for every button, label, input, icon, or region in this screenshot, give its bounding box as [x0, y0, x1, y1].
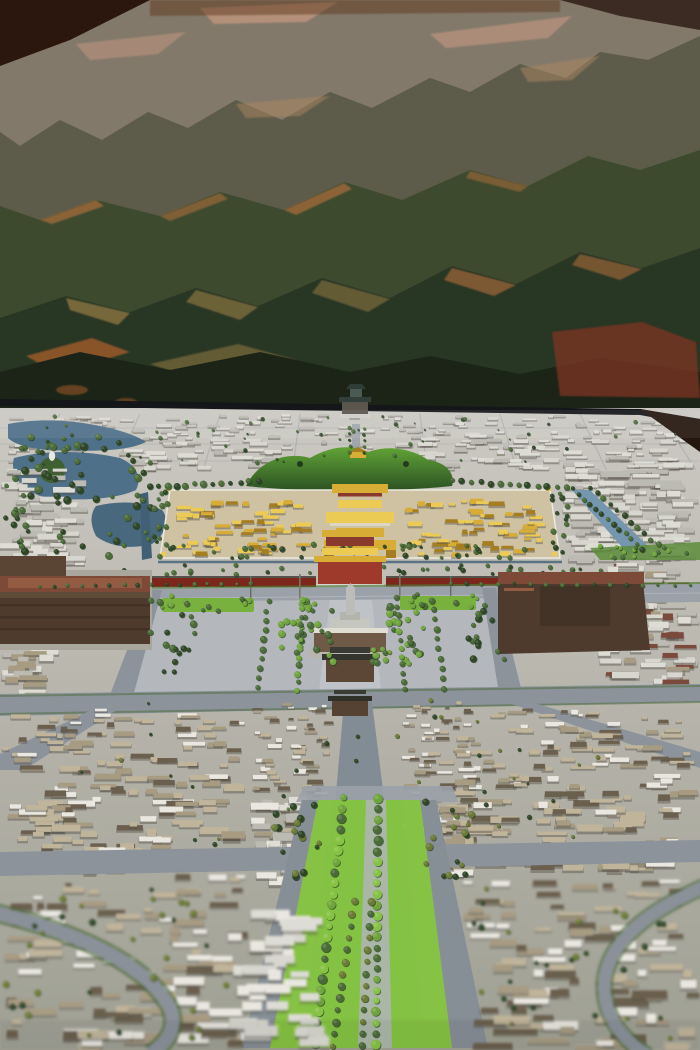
city-block	[683, 752, 690, 755]
tree-highlight	[339, 806, 343, 810]
tree-highlight	[656, 551, 658, 553]
tree-highlight	[460, 863, 462, 865]
tree-highlight	[416, 593, 418, 595]
tree-highlight	[387, 611, 390, 614]
city-block	[262, 759, 273, 762]
city-block	[620, 818, 646, 822]
tree-highlight	[423, 799, 426, 802]
tree-highlight	[374, 826, 378, 830]
tree-highlight	[139, 456, 140, 457]
city-block	[592, 440, 609, 443]
tree-highlight	[369, 899, 373, 903]
tree-highlight	[38, 585, 39, 586]
city-block	[600, 730, 622, 733]
tree-highlight	[364, 439, 365, 440]
tree-highlight	[417, 652, 420, 655]
city-block	[606, 452, 621, 454]
city-block	[588, 712, 599, 715]
tree-highlight	[424, 862, 426, 864]
city-block	[98, 760, 105, 765]
tree-highlight	[674, 584, 675, 585]
tree-highlight	[157, 525, 159, 527]
city-block	[571, 514, 591, 519]
tree-highlight	[299, 630, 301, 632]
city-block	[618, 506, 630, 511]
tree-highlight	[561, 583, 563, 585]
tree-highlight	[413, 649, 416, 652]
tree-highlight	[544, 484, 547, 487]
city-block	[175, 874, 190, 879]
city-block	[491, 546, 499, 551]
tree-highlight	[23, 523, 26, 526]
tree-highlight	[413, 595, 415, 597]
city-block	[37, 903, 44, 909]
city-block	[9, 666, 26, 671]
tree-highlight	[334, 847, 338, 851]
city-block	[183, 742, 205, 746]
tree-highlight	[450, 808, 452, 810]
city-block	[668, 459, 677, 461]
city-block	[419, 451, 438, 455]
tree-highlight	[469, 812, 472, 815]
tree-highlight	[374, 870, 378, 874]
city-block	[573, 884, 598, 889]
tree-highlight	[408, 640, 411, 643]
city-block	[455, 717, 461, 720]
tree-highlight	[189, 615, 191, 617]
city-block	[678, 617, 691, 624]
tree-highlight	[11, 522, 14, 525]
city-block	[497, 450, 504, 454]
tree-highlight	[160, 492, 162, 494]
city-block	[144, 908, 152, 912]
city-block	[177, 889, 200, 894]
tree-highlight	[497, 825, 499, 827]
tree-highlight	[213, 843, 215, 845]
tree-highlight	[375, 806, 379, 810]
city-block	[625, 500, 635, 504]
city-block	[215, 892, 225, 896]
city-block	[673, 502, 694, 507]
tree-highlight	[164, 525, 166, 527]
tree-highlight	[372, 1008, 376, 1012]
tree-highlight	[466, 823, 468, 825]
tree-highlight	[556, 485, 558, 487]
city-block	[405, 508, 412, 513]
tree-highlight	[81, 584, 83, 586]
tree-highlight	[373, 923, 377, 927]
city-block	[129, 789, 138, 795]
tree-highlight	[66, 584, 68, 586]
tree-highlight	[308, 571, 309, 572]
city-block	[624, 658, 635, 664]
tree-highlight	[339, 984, 342, 987]
tree-highlight	[165, 630, 168, 633]
city-block	[424, 760, 436, 763]
gate-base	[338, 493, 382, 497]
tree-highlight	[481, 609, 484, 612]
tree-highlight	[80, 544, 83, 547]
city-block	[175, 720, 181, 724]
city-block	[188, 442, 200, 444]
city-block	[457, 736, 469, 740]
tree-highlight	[141, 471, 144, 474]
tree-highlight	[108, 532, 110, 534]
city-block	[514, 513, 524, 517]
city-block	[473, 802, 491, 808]
city-block	[70, 722, 81, 724]
city-block	[654, 774, 680, 778]
tree-highlight	[522, 547, 524, 549]
tree-highlight	[279, 622, 282, 625]
city-block	[90, 843, 106, 847]
tree-highlight	[399, 646, 401, 648]
tree-highlight	[172, 670, 174, 672]
city-block	[211, 501, 223, 506]
tree-highlight	[551, 529, 554, 532]
city-block	[221, 831, 245, 838]
tree-highlight	[441, 676, 444, 679]
tree-highlight	[453, 874, 456, 877]
city-block	[173, 943, 198, 947]
city-block	[191, 508, 204, 512]
city-block	[471, 742, 480, 745]
tree-highlight	[326, 924, 329, 927]
city-block	[322, 440, 327, 444]
city-block	[679, 790, 698, 795]
city-block	[423, 707, 431, 709]
city-block	[102, 993, 119, 998]
city-block	[610, 757, 629, 761]
tree-highlight	[381, 647, 383, 649]
city-block	[548, 776, 559, 781]
tree-highlight	[352, 899, 355, 902]
tree-highlight	[509, 565, 511, 567]
tree-highlight	[224, 445, 225, 446]
tree-highlight	[593, 583, 595, 585]
shenwu-gate	[332, 484, 388, 493]
city-block	[112, 790, 126, 794]
tree-highlight	[5, 484, 7, 486]
tree-highlight	[364, 984, 367, 987]
city-block	[183, 534, 188, 537]
tree-highlight	[601, 496, 604, 499]
tree-highlight	[135, 493, 137, 495]
city-block	[187, 955, 212, 960]
tree-highlight	[571, 487, 573, 489]
city-block	[545, 443, 559, 445]
tree-highlight	[231, 557, 232, 558]
tree-highlight	[365, 959, 368, 962]
city-block	[663, 813, 678, 818]
tree-highlight	[322, 944, 326, 948]
tree-highlight	[536, 484, 538, 486]
city-block	[442, 719, 452, 722]
city-block	[141, 928, 162, 933]
tree-highlight	[202, 609, 204, 611]
city-block	[649, 622, 669, 628]
city-block	[642, 716, 647, 719]
city-block	[676, 720, 681, 722]
city-block	[226, 501, 238, 504]
tree-highlight	[323, 454, 324, 455]
flagpole	[299, 574, 301, 598]
tree-highlight	[393, 454, 395, 456]
tree-highlight	[435, 627, 438, 630]
tree-highlight	[599, 512, 601, 514]
tree-highlight	[22, 468, 26, 472]
tree-highlight	[273, 812, 276, 815]
tree-highlight	[221, 569, 222, 570]
tree-highlight	[299, 623, 301, 625]
tree-highlight	[465, 554, 467, 556]
tree-highlight	[56, 501, 58, 503]
city-block	[551, 905, 564, 909]
city-block	[255, 511, 268, 515]
tree-highlight	[565, 447, 566, 448]
tree-highlight	[354, 759, 356, 761]
tree-highlight	[165, 484, 168, 487]
tree-highlight	[297, 680, 299, 682]
tree-highlight	[296, 663, 299, 666]
tree-highlight	[129, 467, 132, 470]
city-block	[61, 727, 67, 731]
city-block	[413, 705, 420, 708]
city-block	[10, 804, 21, 808]
city-block	[667, 667, 689, 671]
city-block	[178, 762, 197, 766]
tree-highlight	[170, 646, 173, 649]
city-block	[305, 731, 317, 734]
tree-highlight	[264, 628, 267, 631]
city-block	[643, 745, 662, 750]
city-block	[534, 970, 543, 977]
city-block	[255, 732, 260, 734]
tree-highlight	[349, 924, 352, 927]
tree-highlight	[243, 546, 245, 548]
tree-highlight	[157, 484, 159, 486]
tree-highlight	[417, 780, 419, 782]
tree-highlight	[507, 568, 509, 570]
city-block	[663, 653, 678, 658]
city-block	[292, 755, 300, 758]
city-block	[638, 970, 646, 976]
tree-highlight	[439, 657, 442, 660]
city-block	[428, 752, 440, 756]
tree-highlight	[331, 880, 335, 884]
tree-highlight	[442, 874, 444, 876]
city-block	[489, 522, 503, 525]
tree-highlight	[552, 799, 554, 801]
tree-highlight	[372, 648, 374, 650]
tree-highlight	[149, 733, 150, 734]
city-block	[291, 745, 301, 748]
tree-highlight	[496, 650, 498, 652]
tree-highlight	[182, 544, 184, 546]
city-block	[254, 528, 266, 532]
tree-highlight	[374, 955, 377, 958]
tree-highlight	[249, 547, 251, 549]
city-block	[648, 947, 676, 951]
city-block	[208, 536, 215, 540]
city-block	[421, 724, 430, 727]
tree-highlight	[312, 803, 315, 806]
city-block	[250, 442, 267, 446]
tree-highlight	[148, 505, 151, 508]
tree-highlight	[561, 551, 563, 553]
city-block	[298, 716, 308, 719]
tree-highlight	[266, 571, 268, 573]
tree-highlight	[517, 483, 519, 485]
tree-highlight	[94, 496, 97, 499]
city-block	[663, 463, 685, 468]
city-block	[519, 529, 535, 532]
city-block	[533, 957, 565, 962]
tree-highlight	[249, 582, 251, 584]
city-block	[243, 501, 249, 506]
tree-highlight	[79, 472, 82, 475]
tree-highlight	[333, 859, 336, 862]
tree-highlight	[513, 582, 514, 583]
city-block	[470, 499, 476, 504]
tree-highlight	[440, 715, 442, 717]
city-block	[146, 829, 156, 836]
tree-highlight	[480, 583, 482, 585]
tree-highlight	[201, 482, 204, 485]
city-block	[94, 1009, 106, 1017]
tree-highlight	[436, 646, 439, 649]
tree-highlight	[327, 653, 329, 655]
tree-highlight	[363, 452, 364, 453]
city-block	[116, 768, 132, 774]
tree-highlight	[383, 545, 385, 547]
city-block	[215, 524, 230, 527]
city-block	[661, 778, 673, 783]
tree-highlight	[588, 502, 590, 504]
tree-highlight	[183, 484, 186, 487]
city-block	[445, 519, 457, 523]
city-block	[306, 770, 318, 773]
city-block	[659, 880, 679, 884]
city-block	[57, 733, 62, 737]
tree-highlight	[497, 555, 499, 557]
tree-highlight	[338, 815, 342, 819]
city-block	[675, 645, 697, 649]
tree-highlight	[328, 901, 332, 905]
tree-highlight	[486, 564, 488, 566]
museum-roof	[498, 572, 644, 584]
city-block	[468, 825, 493, 830]
tree-highlight	[649, 538, 651, 540]
city-block	[585, 715, 598, 717]
city-block	[499, 778, 510, 782]
city-block	[595, 810, 616, 815]
tree-highlight	[401, 672, 403, 674]
tree-highlight	[315, 622, 318, 625]
tree-highlight	[401, 548, 403, 550]
tree-highlight	[341, 795, 344, 798]
city-block	[681, 980, 697, 988]
tree-highlight	[326, 912, 330, 916]
tree-highlight	[361, 1007, 364, 1010]
city-block	[632, 440, 640, 442]
city-block	[528, 522, 533, 525]
tree-highlight	[471, 656, 474, 659]
tree-highlight	[532, 446, 534, 448]
tree-highlight	[465, 544, 467, 546]
city-block	[436, 737, 449, 740]
tree-highlight	[330, 609, 332, 611]
city-block	[72, 840, 83, 844]
city-block	[42, 844, 62, 848]
city-block	[577, 559, 592, 563]
city-block	[181, 715, 200, 718]
city-block	[616, 563, 637, 567]
tree-highlight	[577, 493, 579, 495]
tree-highlight	[617, 528, 619, 530]
archery-tower-roof	[328, 696, 372, 701]
tree-highlight	[53, 477, 56, 480]
tree-highlight	[475, 597, 477, 599]
tree-highlight	[123, 583, 125, 585]
city-block	[232, 888, 242, 892]
city-block	[296, 522, 311, 526]
city-block	[60, 1002, 83, 1008]
tree-highlight	[108, 584, 110, 586]
city-block	[570, 929, 593, 936]
tree-highlight	[435, 637, 437, 639]
tree-highlight	[548, 566, 550, 568]
city-block	[19, 737, 27, 741]
city-block	[643, 502, 657, 506]
city-block	[5, 677, 18, 683]
tree-highlight	[431, 835, 434, 838]
city-block	[453, 726, 459, 729]
tree-highlight	[420, 603, 422, 605]
city-block	[469, 908, 483, 913]
city-block	[192, 949, 201, 955]
city-block	[545, 791, 561, 797]
city-block	[179, 824, 199, 828]
tree-highlight	[276, 458, 277, 459]
city-block	[111, 742, 131, 746]
city-block	[256, 872, 276, 878]
city-block	[505, 512, 512, 516]
city-block	[503, 800, 511, 804]
tree-highlight	[261, 637, 264, 640]
north-annex	[0, 556, 66, 576]
tree-highlight	[469, 604, 471, 606]
city-block	[434, 729, 440, 732]
tree-highlight	[613, 556, 615, 558]
city-block	[271, 509, 285, 513]
city-block	[563, 865, 583, 871]
city-block	[533, 467, 548, 470]
tree-highlight	[243, 602, 245, 604]
city-block	[100, 786, 111, 791]
city-block	[482, 541, 493, 546]
city-block	[586, 464, 594, 467]
tree-highlight	[656, 584, 657, 585]
city-block	[234, 449, 244, 451]
city-block	[445, 707, 449, 709]
tree-highlight	[476, 612, 479, 615]
city-block	[210, 902, 238, 907]
city-block	[170, 935, 178, 942]
tree-highlight	[257, 676, 259, 678]
city-block	[244, 529, 253, 533]
city-block	[70, 741, 93, 746]
